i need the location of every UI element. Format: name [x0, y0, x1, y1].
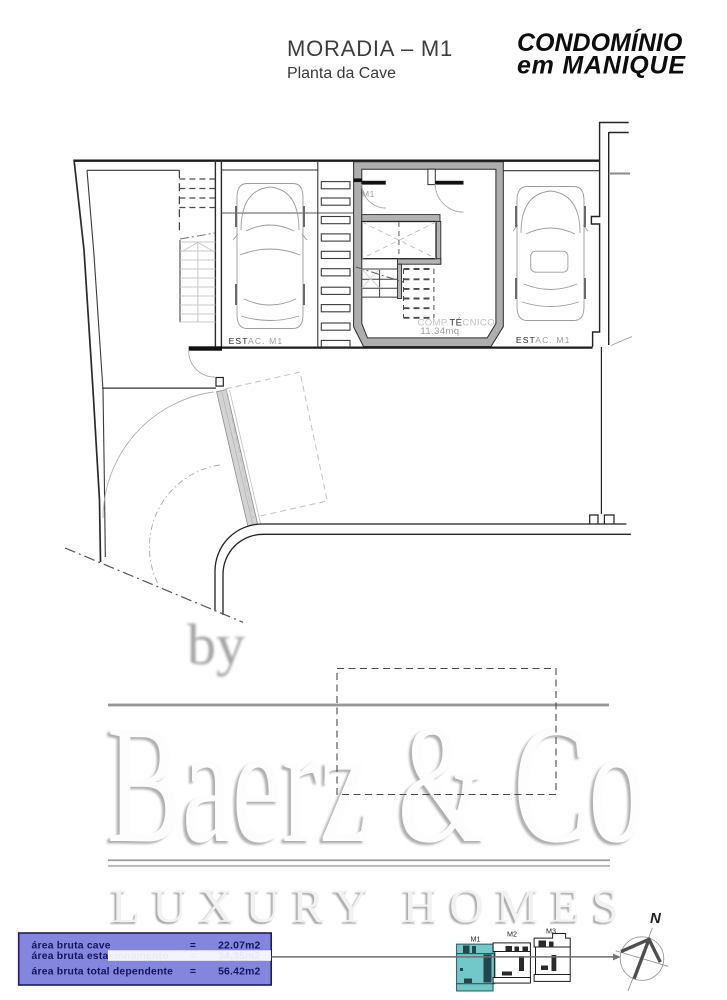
svg-text:56.42m2: 56.42m2 — [218, 967, 260, 978]
svg-text:M1: M1 — [471, 935, 481, 944]
svg-text:M1: M1 — [362, 189, 375, 199]
svg-text:=: = — [190, 941, 196, 952]
svg-text:ESTAC. M1: ESTAC. M1 — [516, 335, 571, 345]
svg-text:M2: M2 — [507, 930, 517, 939]
svg-text:em MANIQUE: em MANIQUE — [517, 52, 686, 80]
svg-text:=: = — [190, 967, 196, 978]
svg-text:área bruta total dependente: área bruta total dependente — [32, 967, 174, 978]
svg-text:ESTAC. M1: ESTAC. M1 — [229, 336, 284, 346]
svg-text:by: by — [187, 612, 245, 677]
svg-text:LUXURY HOMES: LUXURY HOMES — [111, 880, 631, 933]
svg-text:MORADIA – M1: MORADIA – M1 — [287, 36, 453, 61]
svg-text:N: N — [650, 910, 662, 927]
svg-text:M3: M3 — [546, 927, 556, 936]
svg-text:11.34mq: 11.34mq — [420, 326, 459, 337]
svg-text:Baerz & Co: Baerz & Co — [107, 690, 645, 878]
svg-text:22.07m2: 22.07m2 — [218, 941, 260, 952]
svg-text:Planta da Cave: Planta da Cave — [287, 65, 396, 82]
svg-text:área bruta cave: área bruta cave — [32, 941, 111, 952]
